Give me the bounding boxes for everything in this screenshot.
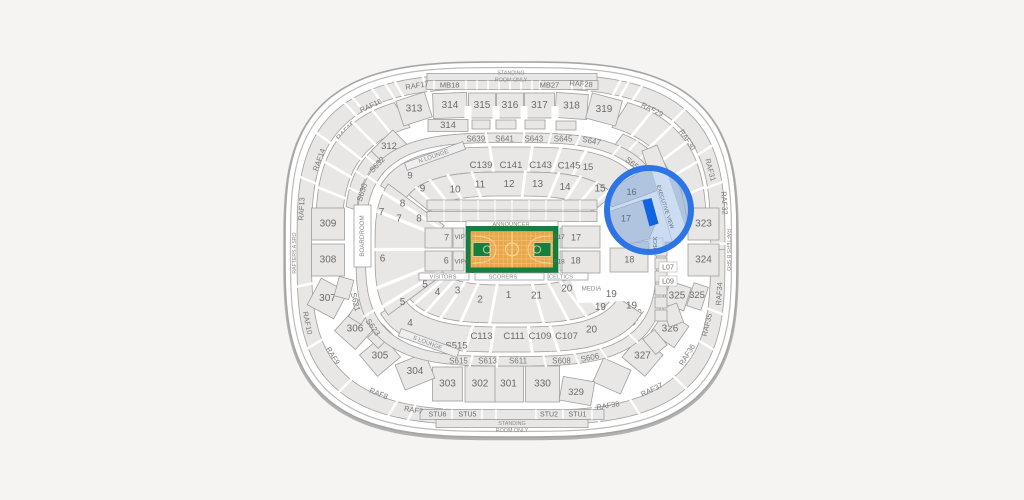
svg-text:303: 303 <box>439 379 456 390</box>
svg-text:313: 313 <box>406 104 423 115</box>
svg-text:STU6: STU6 <box>429 412 447 419</box>
svg-text:10: 10 <box>449 185 461 196</box>
svg-text:SCORERS: SCORERS <box>489 275 518 281</box>
svg-text:9: 9 <box>407 171 412 182</box>
svg-text:ROOM ONLY: ROOM ONLY <box>496 428 529 434</box>
svg-text:302: 302 <box>472 379 489 390</box>
svg-text:P18: P18 <box>553 259 565 266</box>
svg-text:329: 329 <box>568 387 584 398</box>
svg-text:301: 301 <box>500 379 517 390</box>
svg-text:21: 21 <box>531 291 543 302</box>
svg-text:L09: L09 <box>662 278 674 285</box>
svg-text:C139: C139 <box>470 160 493 171</box>
svg-text:RAF32: RAF32 <box>719 191 730 215</box>
svg-text:5: 5 <box>422 280 428 291</box>
svg-text:MEDIA: MEDIA <box>582 286 602 293</box>
svg-text:4: 4 <box>407 318 413 329</box>
svg-text:RAF34: RAF34 <box>714 282 724 306</box>
svg-text:RAF28: RAF28 <box>569 78 593 89</box>
svg-text:306: 306 <box>347 324 364 335</box>
svg-text:9: 9 <box>420 184 426 195</box>
svg-text:VIP6: VIP6 <box>454 259 468 266</box>
svg-text:6: 6 <box>380 254 386 265</box>
svg-text:7: 7 <box>444 232 449 242</box>
svg-text:BOARDROOM: BOARDROOM <box>359 215 366 256</box>
svg-text:13: 13 <box>532 179 544 190</box>
svg-text:STANDING: STANDING <box>498 421 525 427</box>
svg-text:308: 308 <box>320 255 337 266</box>
svg-text:S611: S611 <box>509 357 528 366</box>
svg-text:304: 304 <box>407 366 424 377</box>
svg-text:327: 327 <box>634 351 651 362</box>
svg-text:316: 316 <box>502 100 519 111</box>
svg-text:7: 7 <box>396 214 402 225</box>
svg-text:314: 314 <box>442 100 459 111</box>
svg-text:S639: S639 <box>466 135 485 144</box>
svg-text:P17: P17 <box>553 234 565 241</box>
svg-text:305: 305 <box>372 351 389 362</box>
svg-text:RAFTERS A SRO: RAFTERS A SRO <box>292 232 298 273</box>
svg-text:C107: C107 <box>555 331 578 342</box>
svg-text:8: 8 <box>400 199 406 210</box>
svg-text:20: 20 <box>561 284 573 295</box>
svg-text:315: 315 <box>474 100 491 111</box>
svg-text:307: 307 <box>319 293 336 304</box>
svg-text:317: 317 <box>531 100 548 111</box>
svg-text:15: 15 <box>583 162 594 173</box>
svg-text:19: 19 <box>626 301 638 312</box>
svg-text:CELTICS: CELTICS <box>549 275 573 281</box>
svg-text:C113: C113 <box>470 331 492 342</box>
svg-text:17: 17 <box>621 213 631 223</box>
svg-text:20: 20 <box>586 325 598 336</box>
svg-text:C109: C109 <box>529 331 552 342</box>
svg-text:S615: S615 <box>449 357 468 366</box>
svg-text:318: 318 <box>563 101 580 112</box>
svg-text:ROOM ONLY: ROOM ONLY <box>495 77 528 83</box>
svg-text:L07: L07 <box>662 264 674 271</box>
svg-text:8: 8 <box>416 214 422 225</box>
svg-text:VISITORS: VISITORS <box>430 275 457 281</box>
svg-text:S613: S613 <box>478 357 497 366</box>
svg-text:325: 325 <box>669 291 686 302</box>
svg-text:5: 5 <box>400 297 406 308</box>
svg-text:C111: C111 <box>503 331 524 342</box>
svg-text:RAFTERS B SRO: RAFTERS B SRO <box>725 229 731 271</box>
svg-text:STU2: STU2 <box>540 412 558 419</box>
svg-text:314: 314 <box>440 120 456 131</box>
svg-text:17: 17 <box>571 232 581 242</box>
svg-text:S641: S641 <box>495 135 514 144</box>
svg-text:309: 309 <box>320 219 337 230</box>
svg-text:19: 19 <box>606 289 618 300</box>
svg-text:VIP7: VIP7 <box>454 234 468 241</box>
svg-text:4: 4 <box>435 287 441 298</box>
svg-text:324: 324 <box>695 255 712 266</box>
svg-text:STU5: STU5 <box>459 412 477 419</box>
svg-text:323: 323 <box>695 219 712 230</box>
svg-text:15: 15 <box>594 184 606 195</box>
svg-text:319: 319 <box>596 104 613 115</box>
svg-text:C145: C145 <box>558 161 581 172</box>
svg-text:16: 16 <box>626 187 636 197</box>
svg-text:2: 2 <box>477 295 483 306</box>
svg-text:S645: S645 <box>554 135 573 144</box>
svg-text:330: 330 <box>534 379 551 390</box>
svg-text:18: 18 <box>624 254 634 264</box>
svg-text:STU1: STU1 <box>569 412 587 419</box>
svg-text:1: 1 <box>506 290 512 301</box>
svg-text:RAF13: RAF13 <box>296 197 306 221</box>
svg-text:STANDING: STANDING <box>497 70 524 76</box>
svg-text:S643: S643 <box>524 135 543 144</box>
svg-text:6: 6 <box>444 255 449 265</box>
svg-text:7: 7 <box>379 207 385 218</box>
svg-text:MB18: MB18 <box>440 80 460 89</box>
svg-text:C141: C141 <box>500 160 523 171</box>
svg-text:18: 18 <box>571 255 581 265</box>
svg-text:14: 14 <box>559 182 571 193</box>
svg-text:12: 12 <box>503 179 515 190</box>
svg-text:S608: S608 <box>552 357 571 366</box>
svg-text:3: 3 <box>455 286 461 297</box>
svg-text:C143: C143 <box>529 160 552 171</box>
svg-text:19: 19 <box>595 302 607 313</box>
svg-text:MB27: MB27 <box>540 80 560 89</box>
svg-text:11: 11 <box>475 180 486 191</box>
svg-text:325: 325 <box>689 290 705 301</box>
